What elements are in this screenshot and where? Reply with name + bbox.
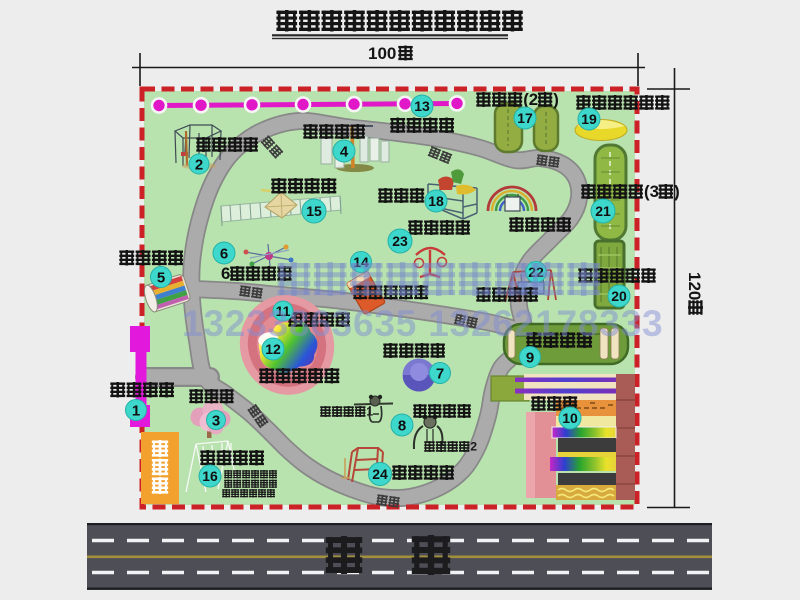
svg-text:6: 6: [220, 245, 228, 262]
svg-text:20: 20: [611, 288, 627, 304]
svg-text:9: 9: [526, 349, 534, 366]
svg-text:6: 6: [221, 264, 230, 283]
svg-text:2: 2: [195, 156, 203, 173]
svg-text:7: 7: [436, 365, 444, 382]
svg-text:): ): [553, 90, 559, 109]
svg-text:5: 5: [157, 269, 165, 286]
svg-text:19: 19: [581, 111, 597, 127]
svg-text:17: 17: [517, 110, 533, 126]
svg-text:1: 1: [366, 405, 373, 419]
svg-text:15: 15: [306, 203, 322, 219]
svg-text:24: 24: [372, 466, 388, 482]
svg-text:8: 8: [398, 417, 406, 434]
svg-text:1: 1: [132, 402, 140, 419]
svg-text:100: 100: [368, 44, 396, 63]
svg-text:4: 4: [340, 143, 349, 160]
svg-text:18: 18: [428, 193, 444, 209]
svg-text:16: 16: [202, 468, 218, 484]
svg-text:10: 10: [562, 410, 578, 426]
svg-text:13233863635 13262178333: 13233863635 13262178333: [182, 303, 663, 344]
svg-text:23: 23: [392, 233, 408, 249]
svg-text:3: 3: [212, 412, 220, 429]
svg-text:2: 2: [470, 440, 477, 454]
svg-text:(3: (3: [644, 182, 659, 201]
svg-text:13: 13: [414, 98, 430, 114]
svg-text:120: 120: [685, 272, 704, 300]
svg-text:): ): [674, 182, 680, 201]
svg-text:(2: (2: [523, 90, 538, 109]
svg-text:21: 21: [595, 203, 611, 219]
